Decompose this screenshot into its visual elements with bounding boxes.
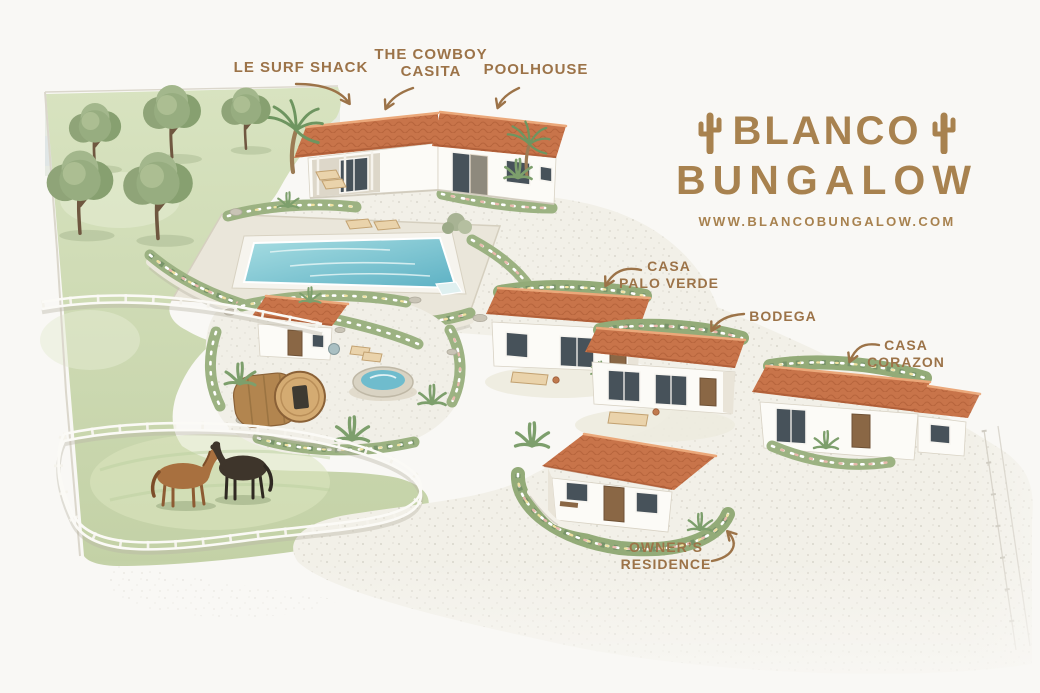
label-line: CASA	[884, 337, 928, 353]
label-bodega: BODEGA	[749, 308, 816, 325]
label-line: CORAZON	[867, 354, 945, 370]
label-owners-residence: OWNER’SRESIDENCE	[621, 539, 712, 573]
brand-name-line2: BUNGALOW	[676, 160, 978, 201]
cactus-icon	[931, 108, 957, 154]
paper-fade-right	[968, 0, 1040, 693]
plunge-tub	[349, 367, 417, 401]
label-line: PALO VERDE	[619, 275, 719, 291]
arrow-poolhouse	[498, 88, 519, 107]
label-line: CASA	[647, 258, 691, 274]
label-line: OWNER’S	[629, 539, 703, 555]
label-le-surf-shack: LE SURF SHACK	[234, 59, 369, 76]
casa-corazon-building	[752, 362, 980, 464]
label-line: CASITA	[401, 63, 462, 80]
property-map: LE SURF SHACK THE COWBOYCASITA POOLHOUSE…	[0, 0, 1040, 693]
arrow-cowboy-casita	[386, 88, 413, 108]
brand-logo-row: BLANCO	[676, 108, 978, 154]
label-line: RESIDENCE	[621, 556, 712, 572]
label-cowboy-casita: THE COWBOYCASITA	[374, 46, 487, 80]
label-poolhouse: POOLHOUSE	[484, 61, 589, 78]
brand-name-line1: BLANCO	[732, 111, 921, 151]
brand-logo: BLANCO BUNGALOW WWW.BLANCOBUNGALOW.COM	[676, 108, 978, 229]
bodega-building	[575, 326, 745, 442]
cactus-icon	[697, 108, 723, 154]
spa-garden	[206, 287, 466, 455]
label-casa-corazon: CASACORAZON	[867, 337, 945, 371]
label-line: THE COWBOY	[374, 46, 487, 63]
paper-fade-bottom	[0, 560, 1040, 693]
brand-website: WWW.BLANCOBUNGALOW.COM	[676, 214, 978, 229]
label-casa-palo-verde: CASAPALO VERDE	[619, 258, 719, 292]
